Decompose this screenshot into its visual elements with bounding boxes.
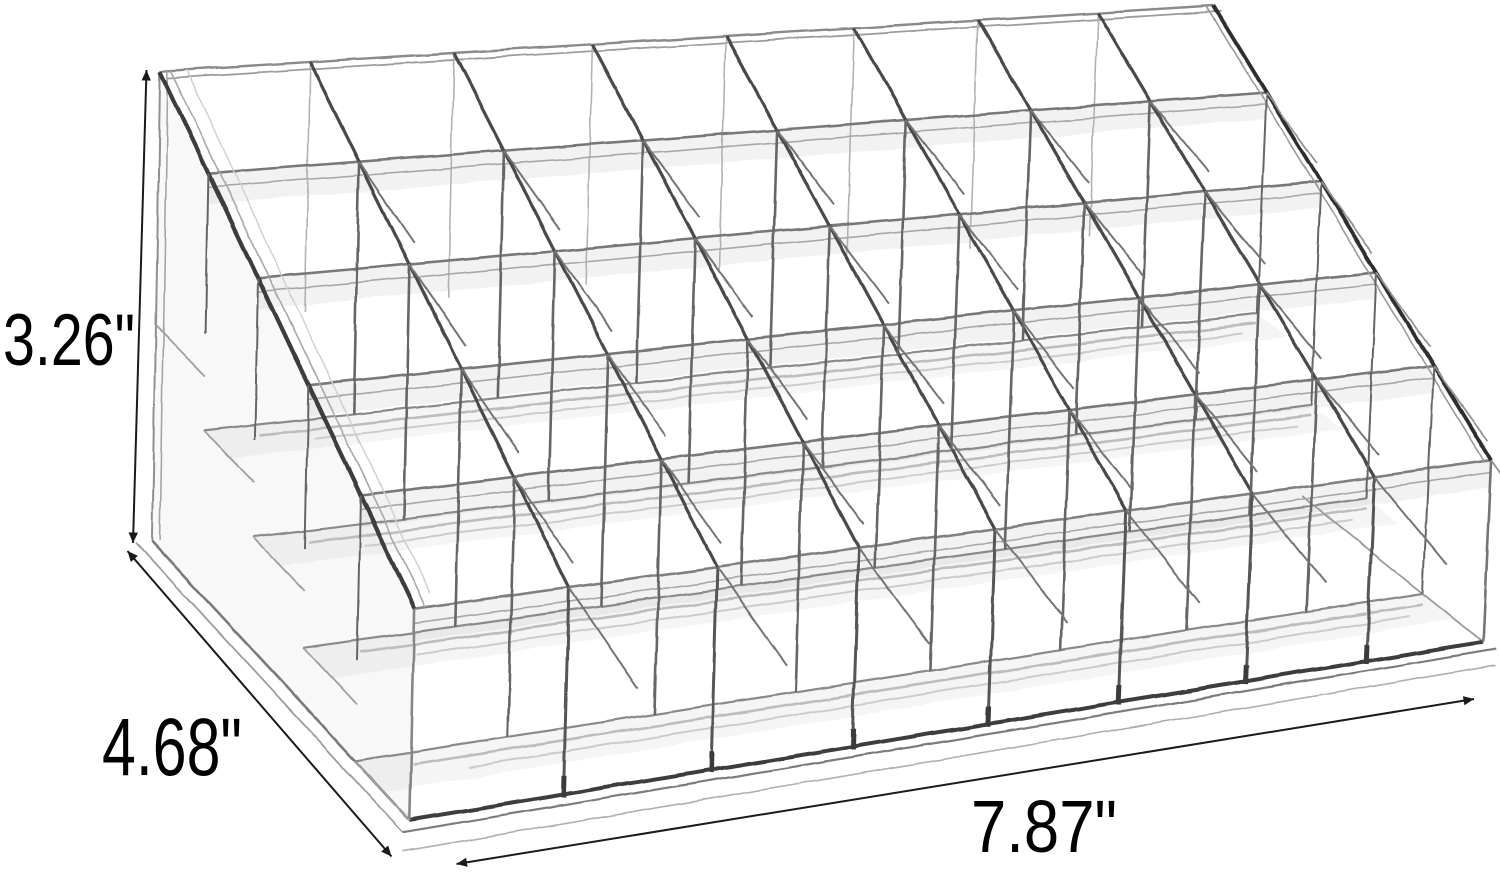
svg-text:4.68": 4.68" — [102, 702, 242, 793]
svg-text:3.26": 3.26" — [3, 300, 135, 381]
svg-text:7.87": 7.87" — [971, 785, 1117, 867]
